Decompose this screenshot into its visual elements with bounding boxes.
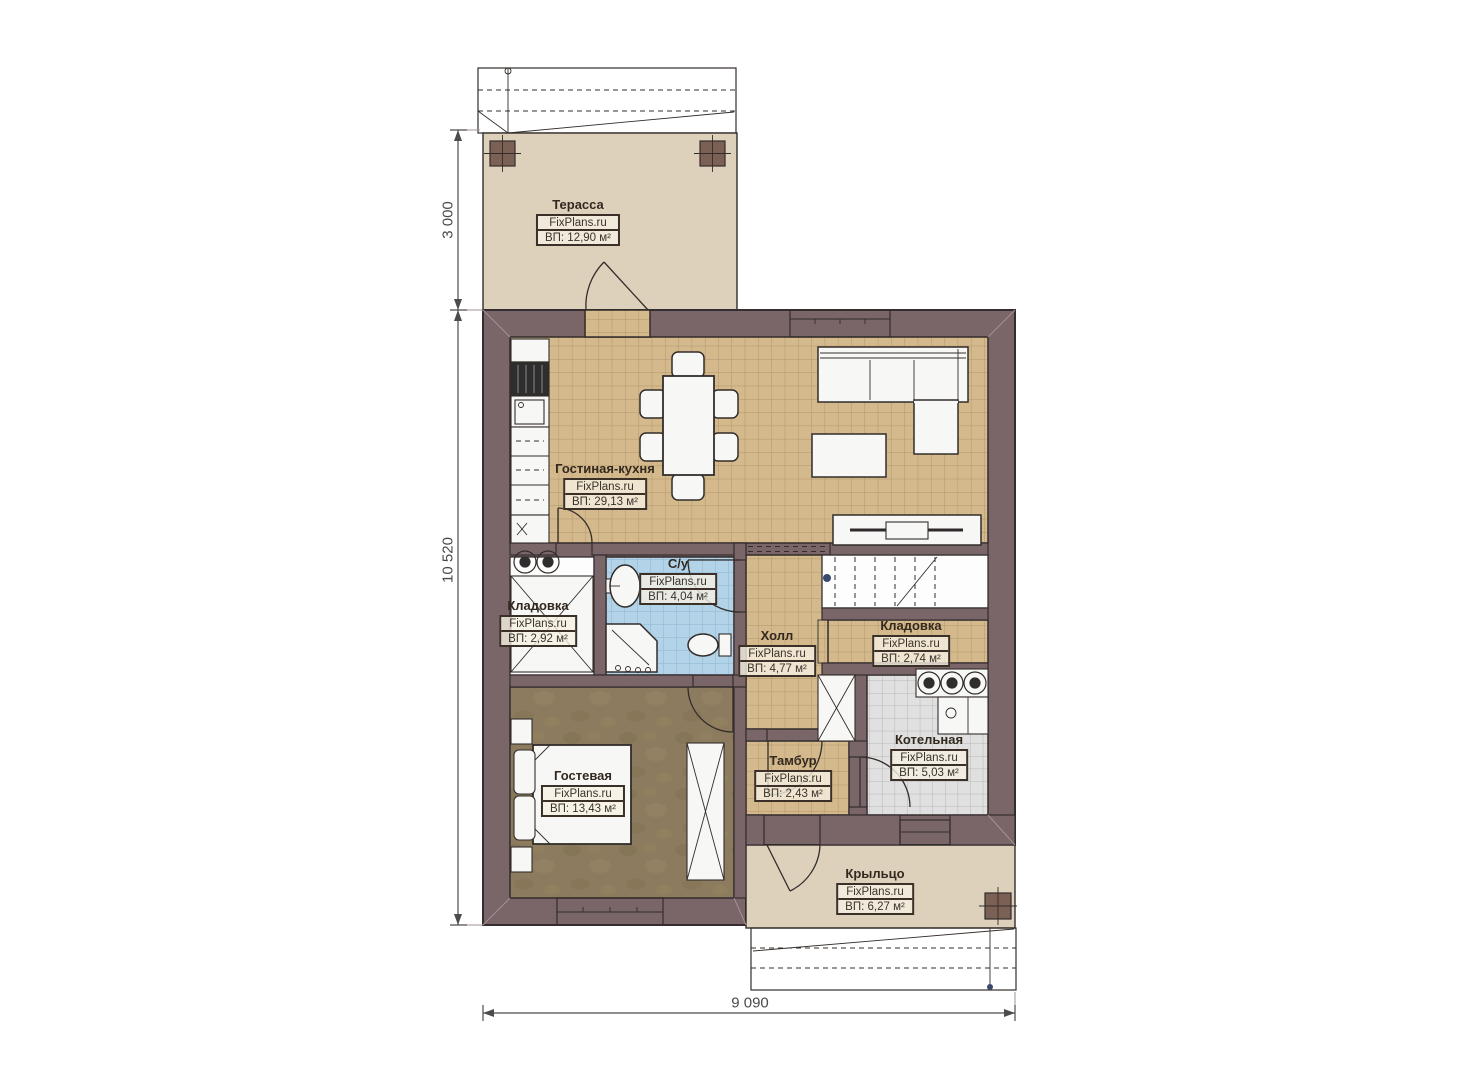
brand-watermark: FixPlans.ru [756,772,830,787]
room-info-box: FixPlans.ru ВП: 13,43 м² [541,785,625,817]
nightstand [511,719,532,744]
room-area: ВП: 13,43 м² [543,802,623,815]
dimension-left-top: 3 000 [440,201,457,239]
chair [712,433,738,461]
room-area: ВП: 4,04 м² [641,590,715,603]
chair [640,390,666,418]
tv-stand [833,515,981,545]
brand-watermark: FixPlans.ru [543,787,623,802]
terrace-door-threshold [585,310,650,337]
room-name: Терасса [536,197,620,212]
room-info-box: FixPlans.ru ВП: 2,74 м² [872,635,950,667]
room-area: ВП: 2,92 м² [501,632,575,645]
terrace-post-left [484,135,521,172]
dimension-left-main: 10 520 [440,537,457,583]
porch-steps [751,928,1016,990]
brand-watermark: FixPlans.ru [874,637,948,652]
terrace-roof-overhang [478,68,736,133]
brand-watermark: FixPlans.ru [501,617,575,632]
stove [511,362,549,396]
porch-post [979,887,1017,925]
room-area: ВП: 5,03 м² [892,766,966,779]
room-info-box: FixPlans.ru ВП: 6,27 м² [836,883,914,915]
room-label-hall: Холл FixPlans.ru ВП: 4,77 м² [738,628,816,677]
chair [640,433,666,461]
room-label-boiler-room: Котельная FixPlans.ru ВП: 5,03 м² [890,732,968,781]
room-info-box: FixPlans.ru ВП: 4,04 м² [639,573,717,605]
room-name: Котельная [890,732,968,747]
room-name: Тамбур [754,753,832,768]
room-label-bathroom: С/у FixPlans.ru ВП: 4,04 м² [639,556,717,605]
room-name: Кладовка [499,598,577,613]
floor-stairs [822,555,988,608]
room-area: ВП: 2,74 м² [874,652,948,665]
room-info-box: FixPlans.ru ВП: 2,92 м² [499,615,577,647]
brand-watermark: FixPlans.ru [740,647,814,662]
brand-watermark: FixPlans.ru [892,751,966,766]
brand-watermark: FixPlans.ru [538,216,618,231]
room-name: Кладовка [872,618,950,633]
pillow [514,750,535,794]
dining-table [663,376,714,475]
kitchen-cabinets [511,427,549,515]
nightstand [511,847,532,872]
room-area: ВП: 12,90 м² [538,231,618,244]
room-label-storage-left: Кладовка FixPlans.ru ВП: 2,92 м² [499,598,577,647]
kitchen-counter [511,339,549,543]
chair [712,390,738,418]
coffee-table [812,434,886,477]
kitchen-cabinet-x [511,515,549,543]
room-info-box: FixPlans.ru ВП: 4,77 м² [738,645,816,677]
room-info-box: FixPlans.ru ВП: 2,43 м² [754,770,832,802]
hall-closet-x [818,675,855,741]
room-label-living-kitchen: Гостиная-кухня FixPlans.ru ВП: 29,13 м² [555,461,655,510]
fridge [511,339,549,362]
room-area: ВП: 6,27 м² [838,900,912,913]
floor-plan-drawing [0,0,1473,1080]
room-label-guest-room: Гостевая FixPlans.ru ВП: 13,43 м² [541,768,625,817]
room-info-box: FixPlans.ru ВП: 5,03 м² [890,749,968,781]
room-name: Гостиная-кухня [555,461,655,476]
room-label-terrace: Терасса FixPlans.ru ВП: 12,90 м² [536,197,620,246]
terrace-post-right [694,135,731,172]
pillow [514,796,535,840]
floor-plan-canvas: Терасса FixPlans.ru ВП: 12,90 м² Гостина… [0,0,1473,1080]
brand-watermark: FixPlans.ru [838,885,912,900]
room-area: ВП: 2,43 м² [756,787,830,800]
room-label-storage-right: Кладовка FixPlans.ru ВП: 2,74 м² [872,618,950,667]
chair [672,352,704,378]
dimension-bottom: 9 090 [731,995,769,1012]
room-name: С/у [639,556,717,571]
room-name: Гостевая [541,768,625,783]
wardrobe [687,743,724,880]
room-name: Крыльцо [836,866,914,881]
brand-watermark: FixPlans.ru [641,575,715,590]
room-label-vestibule: Тамбур FixPlans.ru ВП: 2,43 м² [754,753,832,802]
room-name: Холл [738,628,816,643]
kitchen-sink [511,396,549,427]
chair [672,474,704,500]
toilet [688,634,731,656]
boiler-cabinet [938,697,988,734]
brand-watermark: FixPlans.ru [565,480,645,495]
room-area: ВП: 4,77 м² [740,662,814,675]
room-info-box: FixPlans.ru ВП: 12,90 м² [536,214,620,246]
room-area: ВП: 29,13 м² [565,495,645,508]
room-label-porch: Крыльцо FixPlans.ru ВП: 6,27 м² [836,866,914,915]
room-info-box: FixPlans.ru ВП: 29,13 м² [563,478,647,510]
